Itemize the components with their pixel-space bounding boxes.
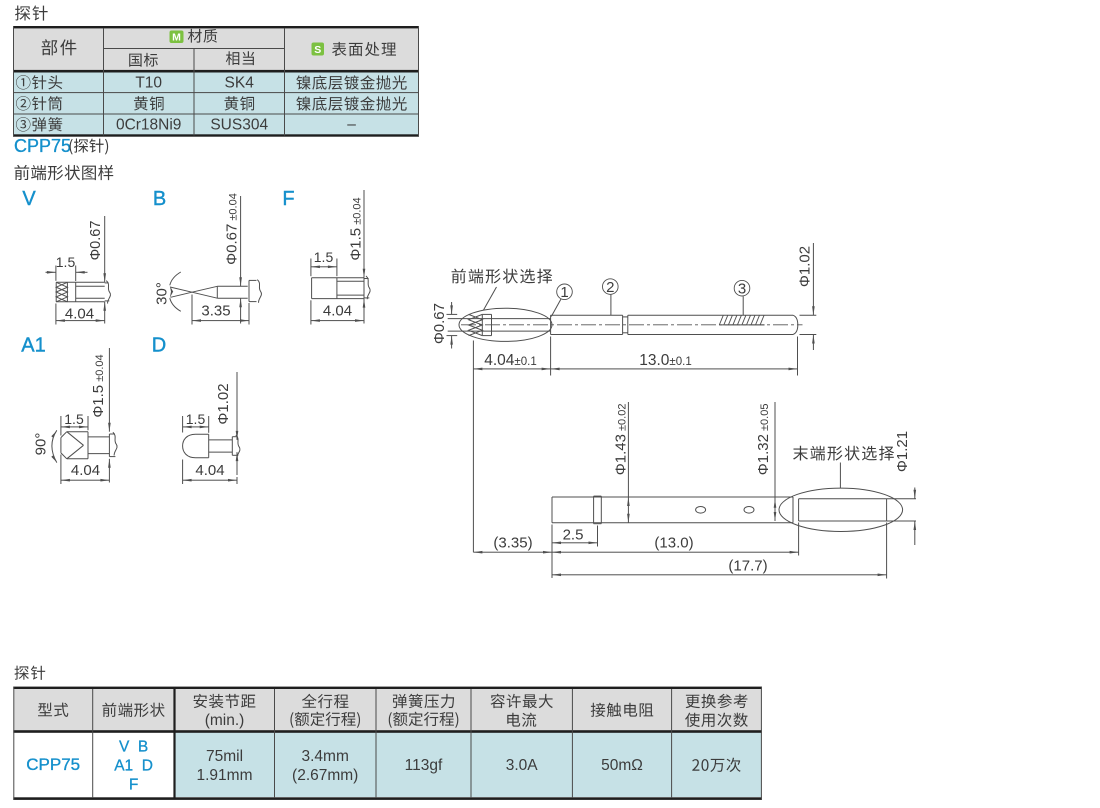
svg-text:0Cr18Ni9: 0Cr18Ni9 (116, 117, 181, 134)
svg-text:1.5: 1.5 (314, 249, 334, 265)
svg-text:Φ1.5 ±0.04: Φ1.5 ±0.04 (90, 354, 107, 417)
svg-text:13.0±0.1: 13.0±0.1 (639, 352, 691, 369)
svg-text:F: F (282, 188, 294, 210)
svg-text:3.0A: 3.0A (506, 757, 539, 774)
svg-text:(min.): (min.) (205, 712, 245, 729)
svg-text:4.04: 4.04 (65, 305, 94, 322)
svg-text:Φ1.21: Φ1.21 (894, 431, 911, 472)
svg-text:Φ0.67: Φ0.67 (431, 303, 448, 344)
svg-text:4.04: 4.04 (323, 302, 352, 319)
svg-text:D: D (152, 335, 166, 357)
svg-text:SUS304: SUS304 (210, 117, 268, 134)
svg-text:SK4: SK4 (225, 75, 255, 92)
svg-text:113gf: 113gf (405, 757, 443, 774)
svg-text:1.5: 1.5 (186, 411, 206, 427)
svg-text:1: 1 (560, 284, 568, 301)
svg-text:2: 2 (606, 279, 614, 296)
svg-text:M: M (172, 32, 181, 44)
svg-text:Φ1.32 ±0.05: Φ1.32 ±0.05 (755, 404, 772, 476)
svg-text:CPP75: CPP75 (14, 136, 71, 156)
svg-text:4.04: 4.04 (71, 462, 100, 479)
svg-text:1.5: 1.5 (56, 254, 76, 270)
svg-text:A1 D: A1 D (114, 758, 153, 775)
svg-text:4.04±0.1: 4.04±0.1 (484, 352, 536, 369)
svg-text:50mΩ: 50mΩ (601, 757, 643, 774)
svg-text:V B: V B (119, 739, 148, 756)
svg-text:75mil: 75mil (206, 748, 243, 765)
svg-text:3.35: 3.35 (201, 302, 230, 319)
svg-text:Φ0.67: Φ0.67 (88, 221, 104, 261)
svg-text:(2.67mm): (2.67mm) (292, 767, 358, 784)
svg-text:2.5: 2.5 (563, 527, 584, 544)
svg-text:A1: A1 (21, 335, 45, 357)
svg-text:–: – (347, 116, 356, 133)
svg-text:B: B (153, 188, 166, 210)
svg-text:3.4mm: 3.4mm (302, 748, 349, 765)
svg-text:T10: T10 (135, 75, 162, 92)
svg-text:V: V (22, 188, 36, 210)
svg-text:(13.0): (13.0) (654, 534, 693, 551)
svg-text:F: F (129, 777, 138, 794)
svg-text:S: S (314, 44, 321, 56)
svg-text:(17.7): (17.7) (728, 557, 767, 574)
svg-text:Φ0.67 ±0.04: Φ0.67 ±0.04 (223, 193, 240, 265)
svg-text:Φ1.5 ±0.04: Φ1.5 ±0.04 (347, 197, 364, 260)
svg-text:1.91mm: 1.91mm (197, 767, 253, 784)
svg-text:3: 3 (738, 281, 746, 298)
svg-text:30°: 30° (154, 282, 171, 305)
svg-text:CPP75: CPP75 (26, 755, 80, 774)
svg-text:Φ1.02: Φ1.02 (215, 383, 232, 424)
svg-text:4.04: 4.04 (195, 462, 224, 479)
svg-text:90°: 90° (32, 433, 49, 456)
svg-text:Φ1.43 ±0.02: Φ1.43 ±0.02 (613, 404, 630, 476)
svg-text:(3.35): (3.35) (493, 534, 532, 551)
svg-text:Φ1.02: Φ1.02 (796, 246, 813, 287)
svg-text:1.5: 1.5 (64, 411, 84, 427)
